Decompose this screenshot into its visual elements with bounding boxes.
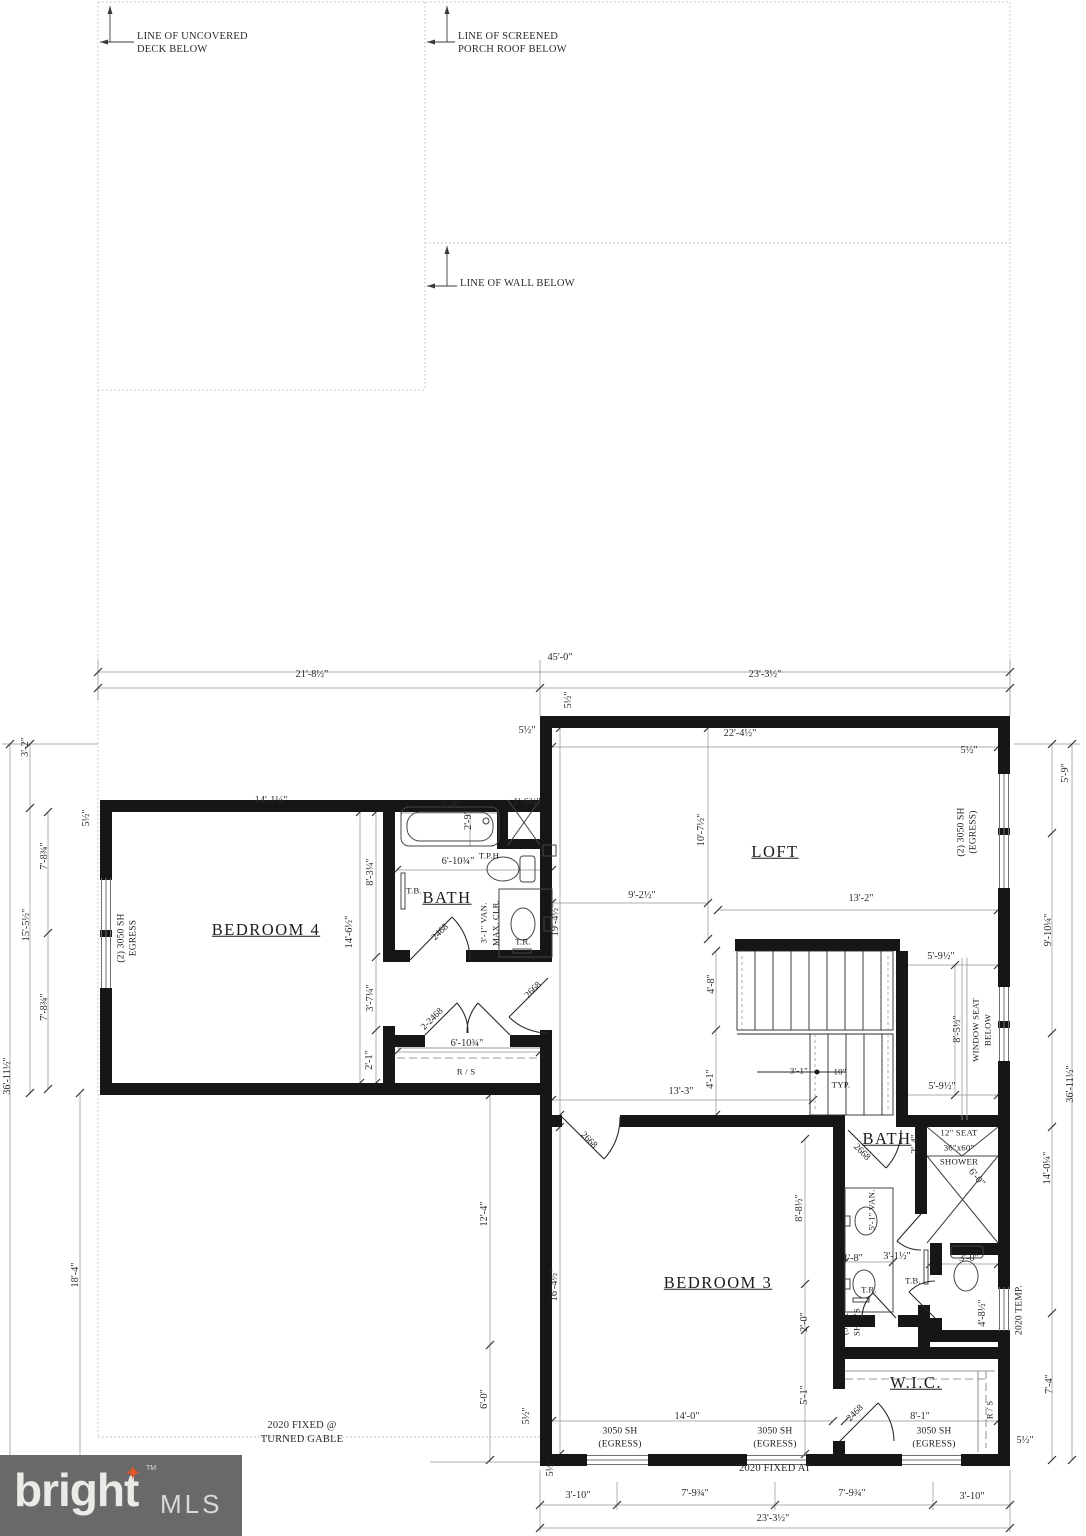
dim-loft-depth: 10'-7½" <box>697 814 707 847</box>
room-loft: LOFT <box>751 844 798 861</box>
window-left-label-2: EGRESS <box>129 920 139 957</box>
logo-star-icon: ✦ <box>124 1461 142 1486</box>
shower-label: SHOWER <box>940 1158 978 1167</box>
room-bedroom-4: BEDROOM 4 <box>212 922 320 939</box>
dim-van-clr: 3'-1½" <box>883 1252 911 1262</box>
linen-shelves-label-1: (5) 12" <box>841 1309 850 1335</box>
towel-bar-2-label: T.B. <box>905 1277 921 1286</box>
floor-plan-page: LINE OF UNCOVEREDDECK BELOWLINE OF SCREE… <box>0 0 1086 1536</box>
dim-stair-a: 4'-8" <box>707 974 717 994</box>
logo-brand-text: bright <box>14 1463 138 1517</box>
dim-wall-a: 5½" <box>518 726 535 736</box>
linen-shelves-label-2: SHLVS <box>853 1308 862 1336</box>
dim-bd4-height: 14'-6½" <box>345 916 355 949</box>
door-hall-label: 2668 <box>524 981 544 1001</box>
dim-right-4: 7'-4" <box>1045 1374 1055 1394</box>
dim-left-width: 21'-8½" <box>296 670 329 680</box>
dim-tub-width: 2'-9" <box>464 810 474 830</box>
rod-shelf-closet-label: R / S <box>457 1068 476 1077</box>
dim-wic-width: 8'-1" <box>910 1412 930 1422</box>
dim-lower-left-a: 12'-4" <box>480 1202 490 1227</box>
stair-width-label: 3'-1" <box>790 1067 808 1076</box>
dim-wall-g: 5½" <box>522 1407 532 1424</box>
dim-seat-bottom: 5'-9½" <box>928 1082 956 1092</box>
window-bottom1-label-1: 3050 SH <box>603 1427 638 1437</box>
line-of-uncovered-deck-1: LINE OF UNCOVERED <box>137 32 248 43</box>
shower-seat-label: 12" SEAT <box>940 1129 977 1138</box>
dim-stair-width: 13'-2" <box>849 894 874 904</box>
window-bottom2-label-2: (EGRESS) <box>753 1440 796 1450</box>
dim-linen1: 1'-6¾" <box>513 798 541 808</box>
door-bedroom3-label: 2668 <box>578 1131 598 1151</box>
room-bath-2: BATH <box>862 1131 911 1148</box>
window-seat-label-2: BELOW <box>984 1014 993 1046</box>
dim-bottom-2: 7'-9¾" <box>681 1489 709 1499</box>
dim-left-1: 3'-2" <box>21 737 31 757</box>
plan-labels: LINE OF UNCOVEREDDECK BELOWLINE OF SCREE… <box>0 0 1086 1536</box>
brightmls-logo: bright ✦ TM MLS <box>0 1455 242 1536</box>
fixed-at-bottom: 2020 FIXED AT <box>739 1464 811 1475</box>
dim-tub-length: 5'-0" <box>441 801 461 811</box>
shower-size-label: 36"x60" <box>944 1144 975 1153</box>
window-loft-label-2: (EGRESS) <box>969 810 979 853</box>
tph-label: T.P.H <box>479 852 499 861</box>
dim-shower-b: 6'-0" <box>966 1167 987 1189</box>
dim-bd3-c: 5'-1" <box>800 1385 810 1405</box>
stair-tread-label-1: 10" <box>834 1068 847 1077</box>
room-wic: W.I.C. <box>890 1375 942 1392</box>
rod-shelf-wic-right-label: R / S <box>986 1401 995 1420</box>
dim-bd3-width: 14'-0" <box>675 1412 700 1422</box>
dim-hall-bottom: 13'-3" <box>669 1087 694 1097</box>
dim-seat-top: 5'-9½" <box>927 952 955 962</box>
dim-left-5: 18'-4" <box>71 1263 81 1288</box>
dim-seat-side: 8'-5½" <box>953 1015 963 1043</box>
dim-overall-width: 45'-0" <box>548 653 573 663</box>
towel-ring-2-label: T.R. <box>861 1286 877 1295</box>
vanity1-label-2: MAX. CLR. <box>492 900 501 946</box>
window-bottom3-label-1: 3050 SH <box>917 1427 952 1437</box>
room-bath-1: BATH <box>422 890 471 907</box>
line-of-uncovered-deck-2: DECK BELOW <box>137 45 208 56</box>
linen-closet-label: L. <box>897 1314 909 1327</box>
dim-right-2: 9'-10¼" <box>1044 914 1054 947</box>
dim-wall-b: 5½" <box>564 691 574 708</box>
rod-shelf-wic-top-label: R / S <box>869 1347 888 1356</box>
logo-suffix-text: MLS <box>160 1489 222 1520</box>
fixed-turned-gable-2: TURNED GABLE <box>261 1435 344 1446</box>
dim-bottom-overall: 23'-3½" <box>757 1514 790 1524</box>
dim-toilet-depth: 4'-8½" <box>978 1299 988 1327</box>
dim-toilet-room: 3'-0" <box>959 1254 979 1264</box>
dim-right-width: 23'-3½" <box>749 670 782 680</box>
dim-bath1-width: 6'-10¾" <box>442 857 475 867</box>
door-closet-label: 2-2468 <box>420 1007 446 1033</box>
dim-wall-f: 5½" <box>1016 1436 1033 1446</box>
dim-left-2: 7'-8¾" <box>40 842 50 870</box>
vanity1-label-1: 3'-1" VAN. <box>480 902 489 943</box>
logo-trademark: TM <box>146 1465 156 1472</box>
line-of-screened-porch-1: LINE OF SCREENED <box>458 32 558 43</box>
door-wic-label: 2468 <box>846 1404 866 1424</box>
dim-bottom-1: 3'-10" <box>566 1491 591 1501</box>
dim-stair-b: 4'-1" <box>706 1069 716 1089</box>
dim-bottom-4: 3'-10" <box>960 1492 985 1502</box>
dim-bd4-width: 14'-1¼" <box>255 796 288 806</box>
dim-right-3: 14'-0¼" <box>1043 1152 1053 1185</box>
dim-bd3-height: 16'-4½" <box>550 1269 560 1302</box>
dim-bd4-a: 8'-3¼" <box>366 858 376 886</box>
dim-shower-a: 2'-4" <box>911 1134 921 1154</box>
stair-tread-label-2: TYP. <box>832 1081 851 1090</box>
line-of-wall-below: LINE OF WALL BELOW <box>460 279 575 290</box>
window-bottom1-label-2: (EGRESS) <box>598 1440 641 1450</box>
dim-closet-width: 6'-10¾" <box>451 1039 484 1049</box>
towel-bar-1-label: T.B. <box>406 887 422 896</box>
dim-hall-height: 19'-4½" <box>551 904 561 937</box>
dim-loft-width: 22'-4½" <box>724 729 757 739</box>
dim-wall-c: 5½" <box>960 746 977 756</box>
room-bedroom-3: BEDROOM 3 <box>664 1275 772 1292</box>
dim-left-overall: 36'-11½" <box>3 1057 13 1094</box>
dim-bd3-b: 2'-0" <box>800 1312 810 1332</box>
dim-right-overall: 36'-11½" <box>1066 1065 1076 1102</box>
window-loft-label-1: (2) 3050 SH <box>957 807 967 856</box>
dim-wall-e: 5½" <box>546 1459 556 1476</box>
window-temp-label: 2020 TEMP. <box>1015 1285 1025 1335</box>
dim-lower-left-b: 6'-0" <box>480 1389 490 1409</box>
fixed-turned-gable-1: 2020 FIXED @ <box>267 1421 336 1432</box>
dim-bd4-b: 3'-7¼" <box>366 984 376 1012</box>
dim-hall-width: 9'-2½" <box>628 891 656 901</box>
dim-sink: 1'-8" <box>843 1254 863 1264</box>
dim-left-4: 7'-8¾" <box>40 993 50 1021</box>
dim-bottom-3: 7'-9¾" <box>838 1489 866 1499</box>
window-seat-label-1: WINDOW SEAT <box>972 998 981 1062</box>
towel-ring-1-label: T.R. <box>515 938 531 947</box>
window-bottom2-label-1: 3050 SH <box>758 1427 793 1437</box>
dim-right-1: 5'-9" <box>1061 763 1071 783</box>
door-bath1-label: 2468 <box>431 923 451 943</box>
line-of-screened-porch-2: PORCH ROOF BELOW <box>458 45 567 56</box>
window-left-label-1: (2) 3050 SH <box>117 913 127 962</box>
dim-bd4-c: 2'-1" <box>365 1050 375 1070</box>
window-bottom3-label-2: (EGRESS) <box>912 1440 955 1450</box>
vanity2-label: 5'-1" VAN. <box>868 1189 877 1230</box>
dim-left-3: 15'-5½" <box>22 909 32 942</box>
dim-bd3-a: 8'-8½" <box>795 1194 805 1222</box>
dim-wall-d: 5½" <box>82 809 92 826</box>
